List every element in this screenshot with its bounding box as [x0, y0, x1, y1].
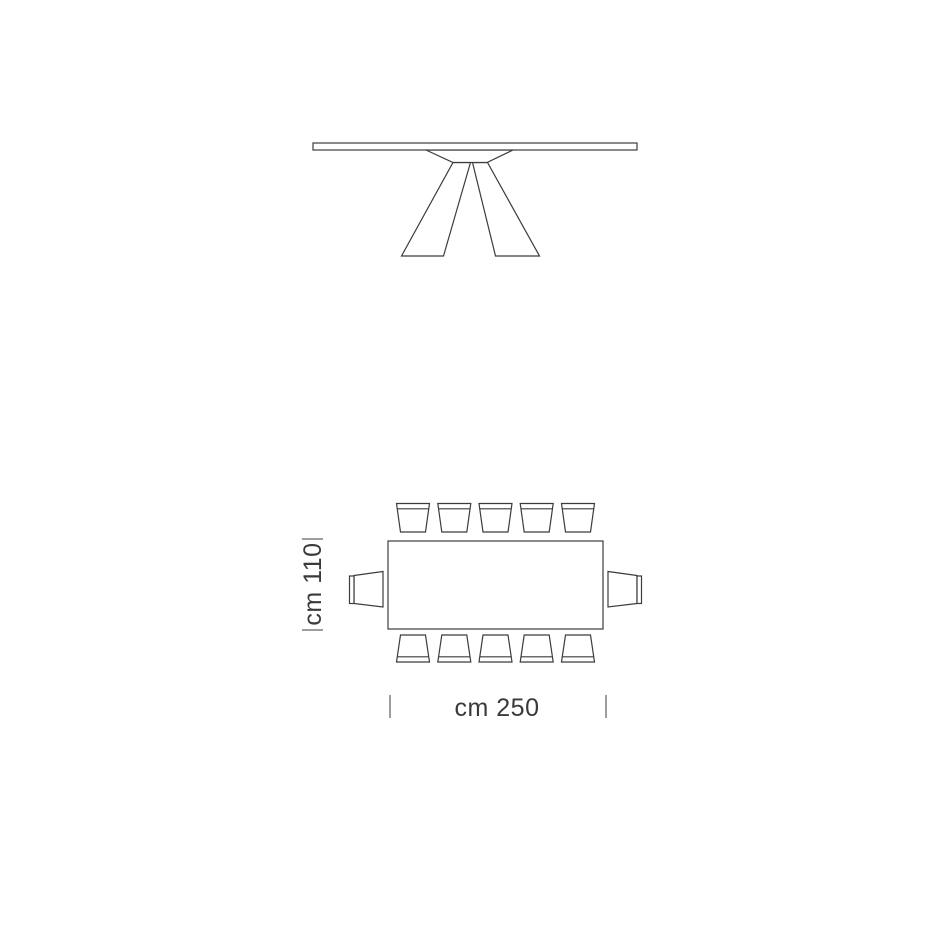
chair-seat	[520, 504, 553, 533]
chair-top-1	[397, 504, 430, 533]
tabletop-side-profile	[313, 143, 637, 150]
chair-seat	[479, 635, 512, 662]
chair-top-4	[520, 504, 553, 533]
depth-dimension-label: cm 110	[299, 534, 327, 634]
chair-seat	[562, 635, 595, 662]
front-elevation-drawing	[300, 135, 650, 265]
chair-seat	[608, 572, 637, 608]
product-dimension-diagram: cm 110 cm 250	[0, 0, 950, 950]
length-dimension-label: cm 250	[437, 694, 557, 722]
chair-backrest	[637, 576, 642, 604]
chair-top-2	[438, 504, 471, 533]
chair-seat	[397, 504, 430, 533]
chair-seat	[520, 635, 553, 662]
dimension-tick	[302, 629, 323, 631]
dimension-tick	[605, 695, 607, 718]
chair-bottom-1	[397, 635, 430, 662]
chair-seat	[397, 635, 430, 662]
chair-seat	[479, 504, 512, 533]
chair-bottom-4	[520, 635, 553, 662]
tabletop-plan	[388, 541, 603, 629]
chair-bottom-5	[562, 635, 595, 662]
chair-bottom-2	[438, 635, 471, 662]
chair-top-3	[479, 504, 512, 533]
pedestal-top	[426, 150, 513, 163]
chair-seat	[562, 504, 595, 533]
pedestal-leg-right	[473, 163, 540, 257]
pedestal-leg-left	[402, 163, 471, 257]
chair-right-end	[608, 572, 642, 608]
chair-seat	[438, 635, 471, 662]
chair-backrest	[350, 576, 355, 604]
chair-bottom-3	[479, 635, 512, 662]
dimension-tick	[389, 695, 391, 718]
chair-seat	[438, 504, 471, 533]
chair-top-5	[562, 504, 595, 533]
plan-view-drawing	[340, 495, 650, 670]
chair-left-end	[350, 572, 384, 608]
chair-seat	[354, 572, 383, 608]
